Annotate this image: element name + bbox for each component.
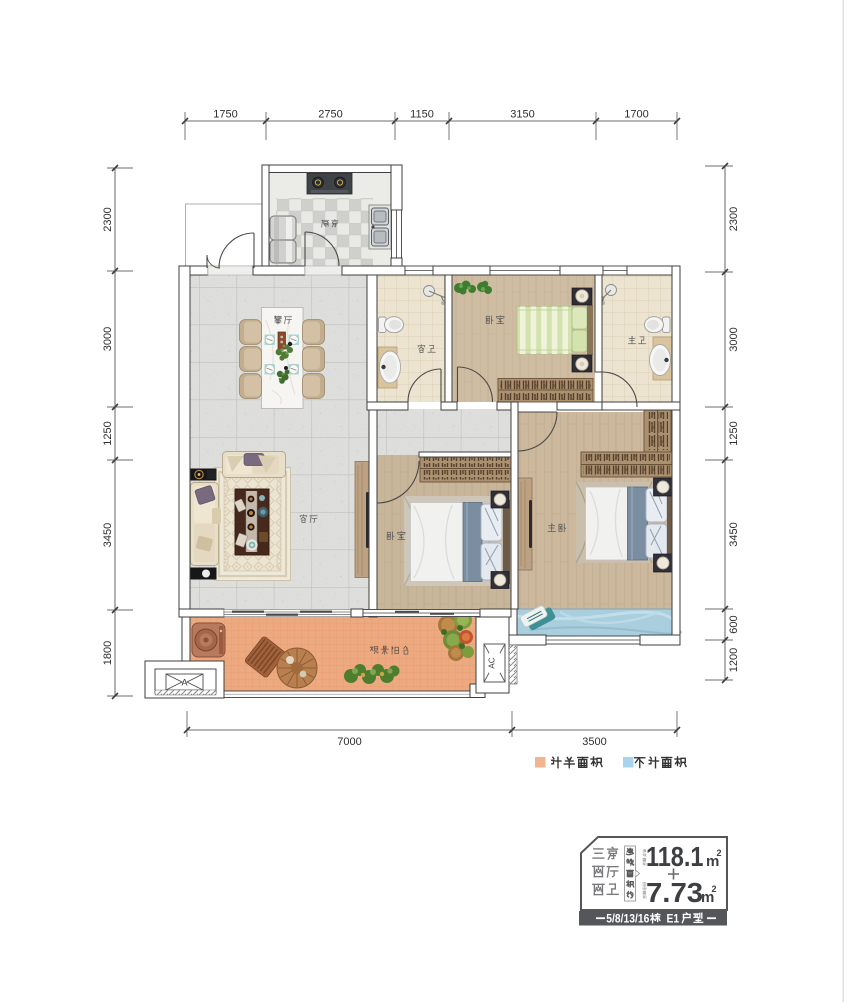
svg-text:3500: 3500: [582, 736, 606, 748]
svg-text:AC: AC: [488, 657, 497, 668]
svg-text:2750: 2750: [318, 109, 342, 121]
svg-text:1800: 1800: [102, 641, 114, 665]
svg-text:3450: 3450: [728, 522, 740, 546]
svg-text:7000: 7000: [337, 736, 361, 748]
svg-text:5/8/13/16: 5/8/13/16: [606, 913, 649, 926]
svg-text:3450: 3450: [102, 523, 114, 547]
svg-text:2300: 2300: [728, 207, 740, 231]
svg-text:7.73: 7.73: [646, 878, 703, 909]
svg-text:1700: 1700: [624, 109, 648, 121]
svg-text:1250: 1250: [102, 421, 114, 445]
svg-text:118.1: 118.1: [646, 842, 704, 872]
svg-text:2: 2: [712, 884, 717, 894]
svg-text:1250: 1250: [728, 421, 740, 445]
svg-text:1200: 1200: [728, 648, 740, 672]
svg-text:1750: 1750: [213, 109, 237, 121]
svg-text:600: 600: [728, 615, 740, 633]
svg-text:3150: 3150: [510, 109, 534, 121]
svg-text:2: 2: [717, 848, 722, 858]
svg-text:E1: E1: [667, 913, 680, 926]
svg-text:1150: 1150: [410, 109, 434, 121]
svg-text:A: A: [181, 678, 187, 688]
svg-text:3000: 3000: [102, 327, 114, 351]
svg-text:3000: 3000: [728, 327, 740, 351]
svg-text:2300: 2300: [102, 207, 114, 231]
